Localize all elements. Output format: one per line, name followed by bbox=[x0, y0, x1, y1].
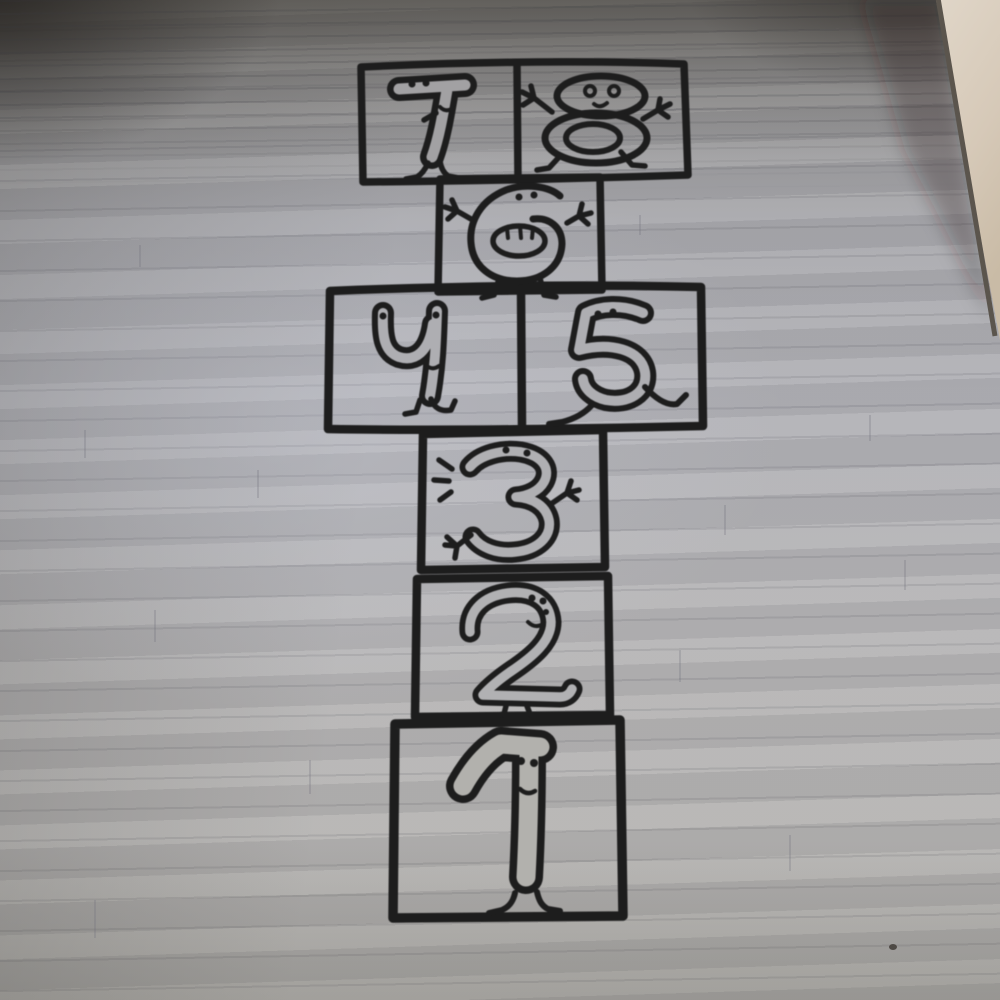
wall-corner bbox=[862, 0, 1000, 340]
numeral-5-character bbox=[549, 307, 686, 424]
numeral-1-character bbox=[463, 744, 560, 913]
numeral-7-character bbox=[399, 80, 465, 180]
numeral-6-character bbox=[445, 186, 591, 298]
numeral-4-character bbox=[380, 311, 456, 414]
numeral-8-eyes bbox=[585, 86, 619, 96]
numeral-6-eyes bbox=[516, 192, 538, 201]
numeral-3-right-arm bbox=[551, 481, 579, 504]
numeral-1-legs bbox=[489, 892, 560, 913]
row-7-8-divider bbox=[517, 66, 518, 180]
numeral-6-body bbox=[471, 186, 562, 281]
hopscotch-court bbox=[328, 62, 703, 918]
numeral-3-left-hand bbox=[445, 535, 471, 558]
photo-scene bbox=[0, 0, 1000, 1000]
numeral-2-character bbox=[470, 593, 572, 716]
numeral-8-mouth bbox=[594, 103, 607, 106]
scene-overlay bbox=[0, 0, 1000, 1000]
numeral-2-outline bbox=[470, 593, 572, 697]
numeral-3-character bbox=[434, 447, 579, 559]
numeral-8-character bbox=[522, 76, 670, 170]
numeral-6-arms bbox=[445, 200, 591, 224]
floor-speck bbox=[889, 944, 897, 950]
row-4-5-divider bbox=[521, 289, 522, 427]
numeral-3-motion-dashes bbox=[434, 460, 452, 500]
